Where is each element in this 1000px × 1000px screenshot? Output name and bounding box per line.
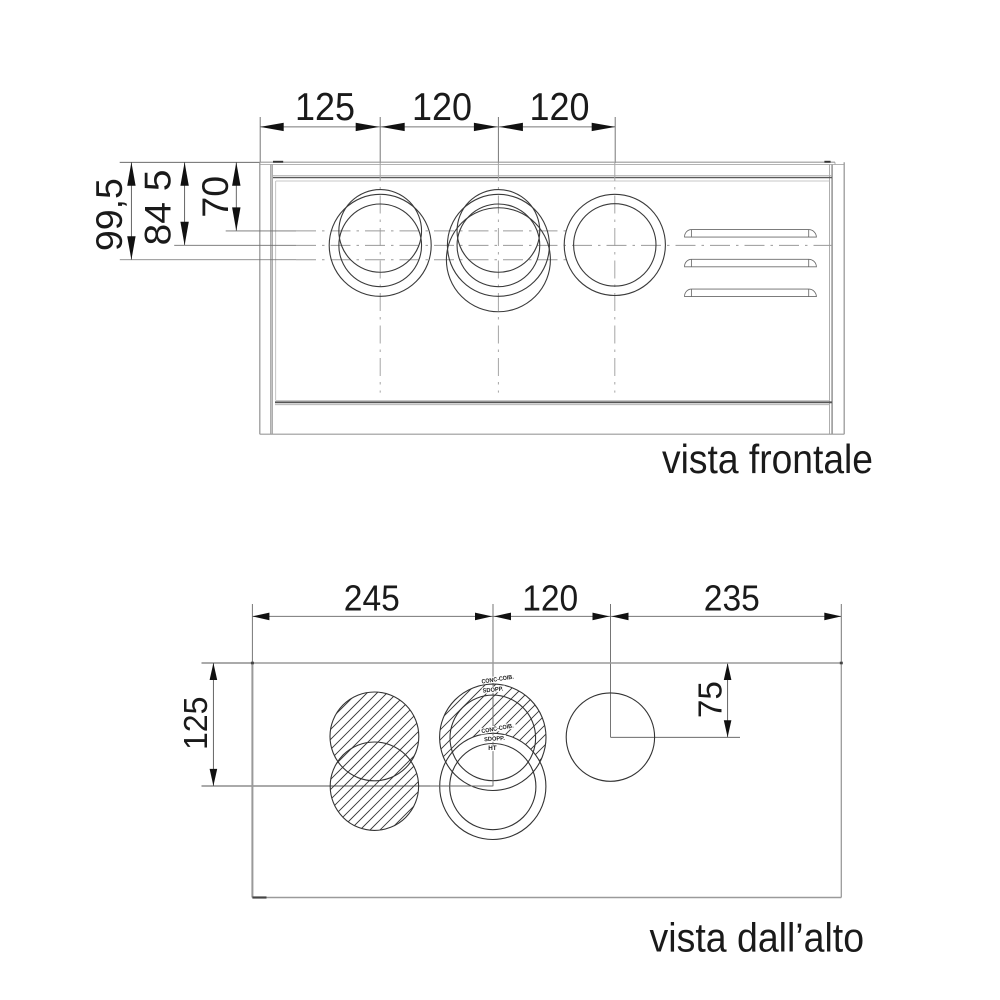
svg-text:HT: HT	[488, 746, 497, 752]
svg-text:120: 120	[412, 86, 472, 129]
svg-text:vista frontale: vista frontale	[662, 436, 873, 482]
svg-text:84 5: 84 5	[137, 170, 179, 246]
svg-text:99,5: 99,5	[88, 178, 130, 251]
svg-text:125: 125	[295, 86, 355, 129]
svg-text:120: 120	[522, 577, 578, 618]
svg-text:125: 125	[178, 697, 215, 751]
svg-text:SDOPP.: SDOPP.	[482, 687, 504, 695]
svg-text:235: 235	[704, 577, 760, 618]
svg-text:245: 245	[344, 577, 400, 618]
svg-text:120: 120	[530, 86, 590, 129]
svg-text:75: 75	[692, 681, 729, 718]
svg-text:70: 70	[194, 176, 236, 218]
svg-text:vista dall’alto: vista dall’alto	[650, 915, 865, 961]
